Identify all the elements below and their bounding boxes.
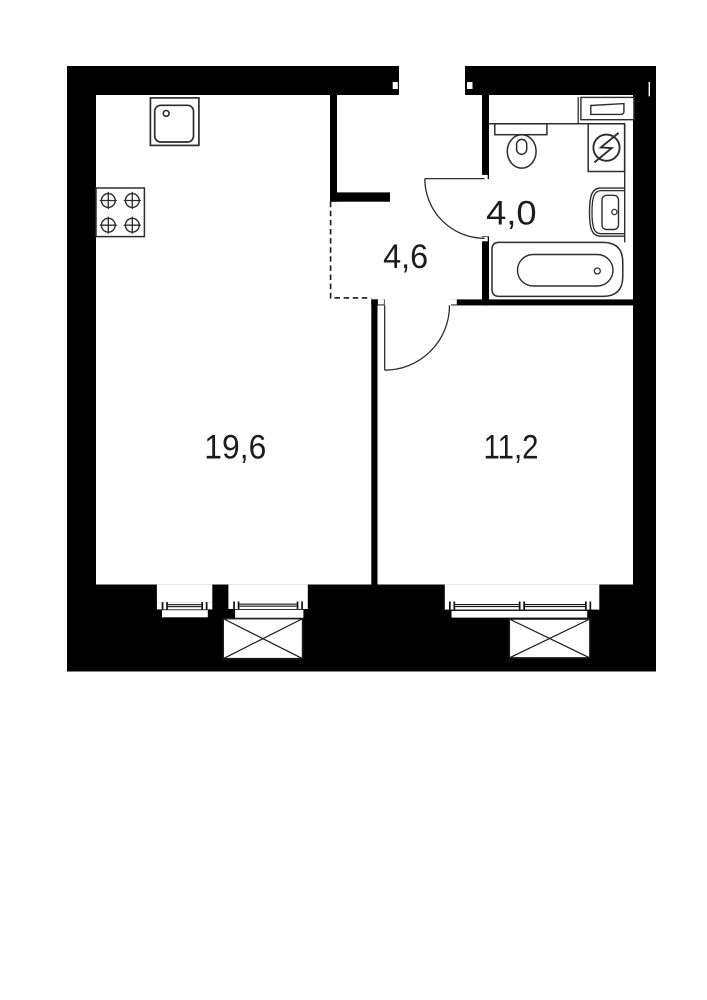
svg-text:4,6: 4,6: [383, 238, 428, 276]
svg-text:11,2: 11,2: [484, 428, 539, 466]
svg-text:4,0: 4,0: [486, 195, 537, 233]
svg-text:19,6: 19,6: [204, 428, 266, 466]
